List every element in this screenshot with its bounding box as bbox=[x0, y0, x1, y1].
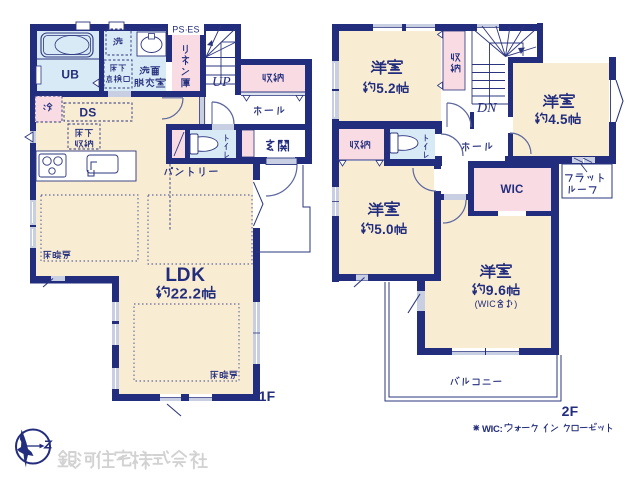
svg-text:S: S bbox=[194, 25, 200, 35]
svg-text:DN: DN bbox=[476, 101, 497, 116]
svg-text:D: D bbox=[177, 265, 191, 286]
svg-text:WIC:: WIC: bbox=[482, 424, 503, 435]
svg-text:C: C bbox=[489, 299, 496, 309]
svg-text:2: 2 bbox=[171, 285, 179, 302]
svg-text:1: 1 bbox=[259, 388, 267, 404]
svg-text:P: P bbox=[172, 25, 178, 35]
svg-text:4: 4 bbox=[548, 112, 556, 127]
svg-text:B: B bbox=[70, 67, 79, 81]
svg-text:5: 5 bbox=[560, 112, 568, 127]
svg-text:S: S bbox=[179, 25, 185, 35]
svg-text:2: 2 bbox=[388, 81, 396, 96]
svg-text:K: K bbox=[191, 265, 205, 286]
svg-text:E: E bbox=[187, 25, 193, 35]
svg-text:0: 0 bbox=[386, 222, 394, 237]
svg-text:5: 5 bbox=[376, 81, 384, 96]
svg-text:D: D bbox=[79, 105, 88, 119]
svg-text:2: 2 bbox=[562, 403, 570, 419]
svg-text:): ) bbox=[514, 299, 517, 309]
svg-text:UP: UP bbox=[212, 75, 231, 90]
svg-text:2: 2 bbox=[179, 285, 187, 302]
svg-text:U: U bbox=[61, 67, 70, 81]
svg-text:W: W bbox=[501, 184, 512, 196]
svg-text:C: C bbox=[515, 184, 523, 196]
svg-text:9: 9 bbox=[486, 282, 494, 298]
svg-text:S: S bbox=[88, 105, 96, 119]
svg-text:W: W bbox=[478, 299, 487, 309]
svg-text:L: L bbox=[165, 265, 177, 286]
svg-text:2: 2 bbox=[193, 285, 201, 302]
svg-text:F: F bbox=[570, 403, 579, 419]
svg-text:5: 5 bbox=[374, 222, 382, 237]
svg-text:6: 6 bbox=[498, 282, 506, 298]
svg-text:F: F bbox=[267, 388, 276, 404]
